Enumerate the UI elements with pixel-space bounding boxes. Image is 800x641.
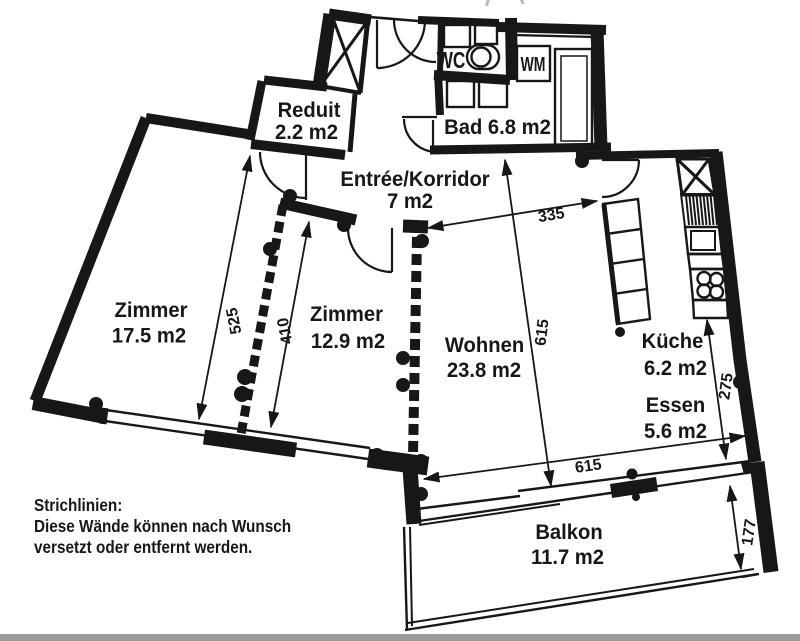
svg-text:Strichlinien:: Strichlinien:	[34, 495, 122, 515]
svg-text:615: 615	[574, 456, 603, 477]
svg-text:WC: WC	[437, 49, 466, 74]
svg-text:2.2 m2: 2.2 m2	[275, 120, 338, 144]
svg-text:Zimmer: Zimmer	[115, 298, 188, 322]
svg-text:Essen: Essen	[646, 393, 706, 417]
svg-text:Balkon: Balkon	[535, 520, 602, 544]
svg-text:WM: WM	[521, 52, 546, 75]
svg-text:Wohnen: Wohnen	[445, 333, 524, 357]
svg-text:Reduit: Reduit	[278, 98, 341, 122]
svg-text:Zimmer: Zimmer	[310, 302, 383, 326]
svg-text:23.8 m2: 23.8 m2	[447, 358, 521, 382]
svg-text:7 m2: 7 m2	[387, 189, 433, 213]
svg-text:275: 275	[716, 372, 737, 401]
svg-text:Entrée/Korridor: Entrée/Korridor	[340, 167, 489, 191]
svg-text:410: 410	[275, 316, 297, 346]
svg-text:615: 615	[532, 318, 552, 347]
svg-text:Bad 6.8 m2: Bad 6.8 m2	[444, 115, 551, 139]
svg-text:12.9 m2: 12.9 m2	[311, 329, 385, 353]
svg-text:5.6 m2: 5.6 m2	[644, 419, 707, 443]
svg-text:versetzt oder entfernt werden.: versetzt oder entfernt werden.	[34, 537, 252, 557]
svg-text:177: 177	[739, 518, 760, 547]
svg-text:Küche: Küche	[642, 329, 704, 353]
svg-text:17.5 m2: 17.5 m2	[112, 324, 186, 348]
svg-text:6.2 m2: 6.2 m2	[644, 356, 707, 380]
svg-text:11.7 m2: 11.7 m2	[531, 545, 604, 569]
svg-text:335: 335	[537, 205, 566, 226]
svg-text:525: 525	[224, 306, 246, 336]
svg-text:Diese Wände können nach Wunsch: Diese Wände können nach Wunsch	[34, 516, 291, 536]
